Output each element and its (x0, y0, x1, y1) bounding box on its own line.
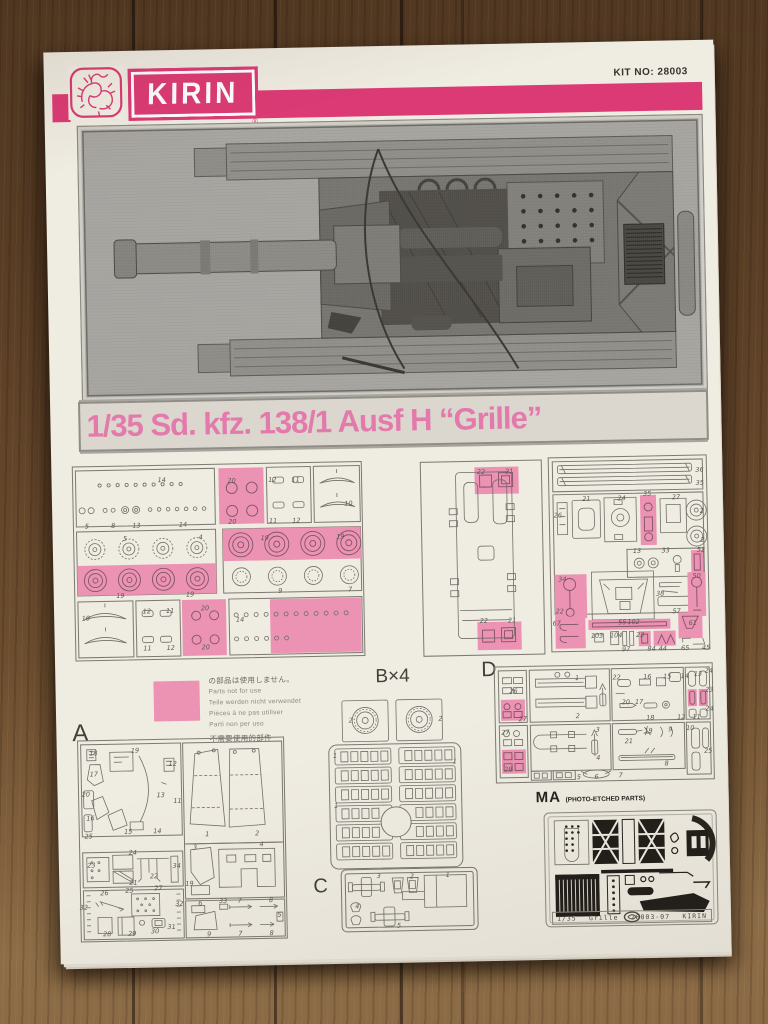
part-number: 2 (576, 713, 580, 720)
part-number: 7 (348, 587, 352, 594)
part-number: 15 (124, 829, 132, 836)
part-number: 23 (87, 862, 95, 869)
part-number: 21 (582, 496, 590, 503)
part-number: 33 (219, 898, 227, 905)
part-number: 19 (261, 535, 269, 542)
part-number: 1 (205, 832, 209, 839)
part-number: 8 (111, 523, 115, 530)
part-number: 55 (618, 619, 626, 626)
header-bar (256, 82, 702, 119)
part-number: 6 (198, 901, 202, 908)
instruction-sheet: KIT NO: 28003 KIRIN ® (43, 40, 730, 965)
part-number: 11 (143, 646, 151, 653)
part-number: 8 (269, 897, 273, 904)
part-number: 52 (697, 547, 705, 554)
part-number: 1 (334, 802, 338, 809)
part-number: 14 (153, 829, 161, 836)
part-number: 21 (129, 880, 137, 887)
part-number: 26 (100, 890, 108, 897)
kirin-creature-icon (68, 65, 125, 120)
part-number: 6 (594, 774, 598, 781)
part-number: 103 (591, 633, 604, 640)
part-number: 21 (625, 738, 633, 745)
part-number: 11 (291, 476, 299, 483)
part-number: 102 (627, 619, 640, 626)
box-art-photo (77, 114, 708, 402)
part-number: 12 (143, 608, 151, 615)
part-number: 45 (702, 645, 710, 652)
screenshot-root: KIT NO: 28003 KIRIN ® (0, 0, 768, 1024)
kit-title-bar: 1/35 Sd. kfz. 138/1 Ausf H “Grille” (78, 390, 709, 452)
part-number: 16 (643, 674, 651, 681)
part-number: 11 (166, 608, 174, 615)
part-number: 10 (82, 615, 90, 622)
part-number: 11 (173, 798, 181, 805)
brand-name: KIRIN (147, 75, 239, 111)
part-number: 4 (199, 535, 203, 542)
part-number: 24 (705, 706, 713, 713)
part-number: 19 (185, 881, 193, 888)
part-number: 32 (175, 901, 183, 908)
part-number: 24 (705, 668, 713, 675)
ma-label: MA (536, 789, 562, 806)
part-number: 5 (85, 523, 89, 530)
part-number: 2 (255, 831, 259, 838)
part-number: 3 (596, 727, 600, 734)
part-number: 22 (477, 469, 485, 476)
part-number: 19 (186, 592, 194, 599)
parts-panel-hull: 22212221 (419, 459, 546, 657)
part-number: 27 (501, 730, 509, 737)
part-number: 14 (179, 521, 187, 528)
part-number: 9 (207, 931, 211, 938)
part-number: 28 (103, 931, 111, 938)
part-number: 22 (150, 873, 158, 880)
part-number: 44 (659, 645, 667, 652)
sprue-panel-c: 32145 (340, 866, 479, 933)
part-number: 13 (132, 522, 140, 529)
part-number: 84 (647, 646, 655, 653)
section-label-c: C (313, 875, 328, 898)
part-number: 16 (86, 816, 94, 823)
part-number: 7 (619, 772, 623, 779)
part-number: 67 (553, 620, 561, 627)
part-number: 61 (689, 619, 697, 626)
section-label-b: B×4 (375, 666, 410, 689)
part-number: 30 (151, 928, 159, 935)
part-number: 36 (695, 466, 703, 473)
part-number: 27 (519, 716, 527, 723)
part-number: 14 (236, 616, 244, 623)
part-number: 20 (201, 605, 209, 612)
part-number: 22 (556, 608, 564, 615)
part-number: 3 (377, 873, 381, 880)
part-number: 18 (89, 751, 97, 758)
part-number: 2 (700, 507, 704, 514)
part-number: 33 (662, 547, 670, 554)
part-number: 1 (453, 759, 457, 766)
part-number: 57 (672, 608, 680, 615)
part-number: 24 (129, 849, 137, 856)
part-number: 17 (90, 771, 98, 778)
part-number: 20 (228, 518, 236, 525)
part-number: 29 (128, 931, 136, 938)
part-number: 23 (636, 632, 644, 639)
kirin-logo (68, 65, 125, 120)
section-label-ma: MA (PHOTO-ETCHED PARTS) (536, 787, 646, 807)
part-number: 24 (617, 495, 625, 502)
photo-etched-fret: 1/35 Grille 28003-07 KIRIN (542, 808, 720, 929)
part-number: 28 (504, 766, 512, 773)
part-number: 20 (622, 699, 630, 706)
part-number: 27 (154, 885, 162, 892)
part-number: 34 (558, 577, 566, 584)
part-number: 1 (446, 871, 450, 878)
part-number: 50 (692, 572, 700, 579)
part-number: 2 (438, 716, 442, 723)
kit-title: 1/35 Sd. kfz. 138/1 Ausf H “Grille” (86, 400, 541, 445)
part-number: 4 (259, 841, 263, 848)
part-number: 4 (596, 755, 600, 762)
part-number: 4 (355, 904, 359, 911)
part-number: 12 (292, 517, 300, 524)
part-number: 25 (704, 747, 712, 754)
part-number: 5 (277, 911, 281, 918)
kit-number: KIT NO: 28003 (613, 66, 688, 78)
part-number: 12 (677, 715, 685, 722)
part-number: 9 (668, 727, 672, 734)
part-number: 3 (193, 844, 197, 851)
part-number: 25 (125, 888, 133, 895)
part-number: 38 (656, 591, 664, 598)
part-number: 2 (700, 537, 704, 544)
tank-top-view-illustration (78, 115, 707, 401)
part-number: 19 (131, 748, 139, 755)
part-number: 26 (554, 512, 562, 519)
part-number: 20 (201, 644, 209, 651)
part-number: 13 (633, 548, 641, 555)
part-number: 8 (269, 930, 273, 937)
part-number: 21 (505, 468, 513, 475)
part-number: 18 (646, 715, 654, 722)
kirin-stamp-icon (553, 910, 711, 924)
part-number: 22 (480, 618, 488, 625)
part-number: 2 (349, 718, 353, 725)
part-number: 26 (509, 688, 517, 695)
part-number: 12 (168, 761, 176, 768)
part-number: 104 (610, 633, 623, 640)
part-number: 12 (268, 476, 276, 483)
part-number: 5 (397, 922, 401, 929)
part-number: 22 (612, 674, 620, 681)
part-number: 97 (622, 646, 630, 653)
part-number: 1 (333, 753, 337, 760)
part-number: 15 (663, 673, 671, 680)
sprue-panel-b: 22111 (326, 697, 465, 872)
part-number: 13 (694, 671, 702, 678)
part-number: 25 (85, 834, 93, 841)
parts-panel-fittings: 3635262124352722133352342255385750671021… (547, 454, 711, 653)
part-number: 7 (238, 931, 242, 938)
part-number: 20 (82, 791, 90, 798)
part-number: 11 (692, 714, 700, 721)
sprue-panel-a: 1819171220131116151425122324212234341926… (77, 736, 289, 943)
part-number: 13 (157, 792, 165, 799)
part-number: 32 (80, 905, 88, 912)
part-number: 31 (167, 924, 175, 931)
not-for-use-color-swatch (153, 681, 200, 722)
part-number: 65 (681, 645, 689, 652)
part-number: 12 (167, 645, 175, 652)
part-number: 34 (172, 863, 180, 870)
part-number: 8 (665, 761, 669, 768)
part-number: 19 (336, 534, 344, 541)
part-number: 11 (269, 518, 277, 525)
sprue-panel-d: 2627272812222016151413171812112423242534… (493, 662, 715, 784)
part-number: 1 (575, 675, 579, 682)
part-number: 2 (410, 873, 414, 880)
brand-wordmark: KIRIN ® (128, 66, 259, 120)
part-number: 10 (686, 725, 694, 732)
part-number: 19 (644, 728, 652, 735)
part-number: 9 (278, 588, 282, 595)
part-number: 14 (681, 673, 689, 680)
part-number: 35 (695, 480, 703, 487)
part-number: 35 (643, 491, 651, 498)
part-number: 5 (123, 536, 127, 543)
part-number: 7 (238, 898, 242, 905)
part-number: 14 (158, 477, 166, 484)
part-number: 17 (635, 699, 643, 706)
part-number: 21 (508, 617, 516, 624)
parts-panel-wheels: 1458131420201211111210541919191997101211… (71, 460, 366, 662)
part-number: 20 (227, 477, 235, 484)
ma-sublabel: (PHOTO-ETCHED PARTS) (565, 795, 645, 804)
part-number: 27 (672, 494, 680, 501)
part-number: 19 (116, 593, 124, 600)
part-number: 10 (344, 501, 352, 508)
part-number: 5 (577, 774, 581, 781)
part-number: 23 (705, 687, 713, 694)
